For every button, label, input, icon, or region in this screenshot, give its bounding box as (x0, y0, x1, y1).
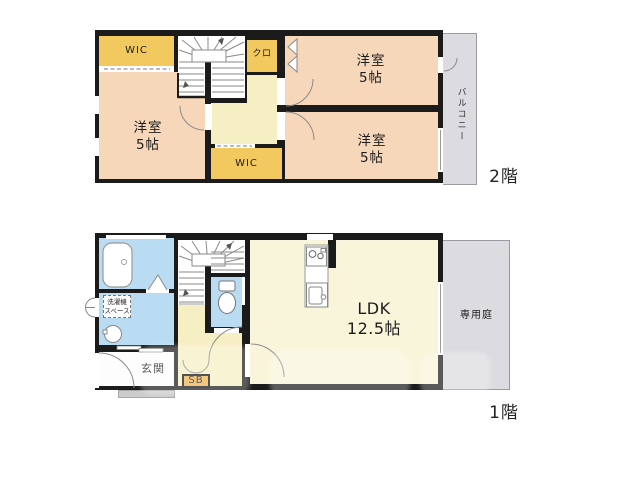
washroom-back-door-arc (86, 298, 95, 317)
ldk-label: LDK12.5帖 (328, 298, 420, 340)
entrance-step (118, 390, 175, 398)
window-left-2 (95, 138, 99, 156)
door-gap-bedroom-tr (277, 78, 285, 105)
window-left-1 (95, 96, 99, 114)
hall-ldk-door-gap (245, 344, 250, 377)
bedroom-br-label: 洋室5帖 (341, 128, 403, 172)
wic-top-label: WIC (99, 42, 174, 60)
balcony-door-gap (438, 57, 443, 73)
floor-1f-label: 1階 (482, 404, 526, 424)
hall-2f-upper (247, 75, 277, 103)
room-toilet (211, 277, 242, 327)
kitchen-stub-wall (328, 240, 336, 268)
toilet-left-wall (205, 277, 211, 333)
bedroom-tr-label: 洋室5帖 (340, 48, 402, 92)
room-bathroom (99, 238, 174, 289)
floor-2f-label: 2階 (482, 168, 526, 188)
laundry-space-box: 洗濯機スペース (103, 295, 131, 318)
door-gap-bedroom-br (277, 112, 285, 140)
entrance-label: 玄関 (128, 362, 178, 376)
stairs-2f (178, 36, 245, 98)
window-balcony (438, 128, 443, 172)
bedroom-left-label: 洋室5帖 (116, 114, 180, 160)
stair-spine-wall-2f (205, 52, 211, 98)
window-top-bath (106, 235, 166, 239)
shoe-box-label: SB (182, 374, 210, 388)
hall-2f (211, 103, 277, 144)
laundry-space-label: 洗濯機スペース (104, 298, 129, 315)
wic-sliding-door (99, 66, 174, 72)
floorplan: 洗濯機スペース (0, 0, 640, 480)
wic-bottom-opening (215, 144, 255, 148)
balcony-label: バルコニー (449, 68, 471, 160)
door-gap-bedroom-left (205, 104, 212, 130)
bath-door-gap (146, 289, 169, 293)
washroom-back-door-gap (95, 298, 99, 317)
toilet-door-gap (214, 328, 239, 333)
wic-bottom-label: WIC (211, 155, 282, 173)
garden-label: 専用庭 (443, 308, 510, 324)
front-door-gap (95, 353, 99, 388)
closet-label: クロ (247, 48, 277, 62)
window-top-kitchen (307, 234, 333, 240)
